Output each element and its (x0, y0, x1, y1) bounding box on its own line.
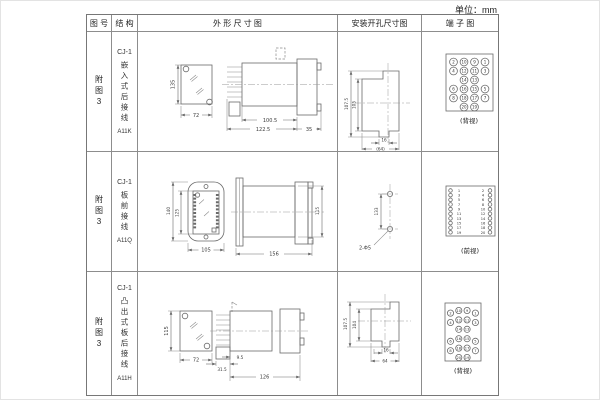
svg-text:5: 5 (457, 198, 459, 202)
svg-text:8: 8 (452, 95, 455, 100)
svg-text:4: 4 (481, 194, 484, 198)
structure-model: CJ-1 (117, 179, 132, 186)
header-mounting: 安装开孔尺寸图 (338, 15, 422, 32)
svg-text:18: 18 (480, 226, 485, 230)
structure-name: 嵌入式后接线 (119, 61, 130, 124)
outline-cell: 115 72 (138, 272, 338, 395)
svg-text:12: 12 (480, 212, 485, 216)
mounting-drawing-a11q: 133 2-Φ5 (338, 152, 421, 271)
terminal-circles: 2109141211314136161558181772019 (447, 307, 478, 360)
svg-text:6: 6 (481, 198, 484, 202)
side-dims: 31.5 9.5 126 (206, 353, 300, 381)
structure-cell: CJ-1 凸出式板后接线 A11H (112, 272, 138, 395)
svg-text:1: 1 (457, 189, 459, 193)
svg-text:4: 4 (452, 68, 455, 73)
center-lines (358, 294, 411, 353)
structure-cell: CJ-1 板前接线 A11Q (112, 152, 138, 272)
outline-drawing-a11h: 115 72 (138, 273, 337, 395)
structure-code: A11K (117, 129, 131, 135)
fig-no-text: 附图3 (94, 195, 105, 229)
structure-name: 板前接线 (119, 191, 130, 233)
structure-code: A11H (117, 376, 132, 382)
svg-text:13: 13 (464, 327, 469, 331)
terminal-cell: 2109141211314136161558181772019 (背视) (422, 272, 498, 395)
side-view (222, 48, 333, 116)
svg-text:16: 16 (383, 347, 389, 352)
outline-drawing-a11q: 140 125 105 (138, 152, 337, 271)
svg-text:11: 11 (456, 212, 461, 216)
svg-text:5: 5 (483, 86, 486, 91)
side-view (231, 178, 324, 246)
terminal-diagram-a11k: 2109141211314136161558181772019 (背视) (423, 32, 498, 151)
svg-text:107.5: 107.5 (344, 98, 349, 110)
svg-text:(64): (64) (376, 146, 385, 151)
dimension-table: 图 号 结 构 外 形 尺 寸 图 安装开孔尺寸图 端 子 图 附图3 CJ-1… (86, 14, 499, 396)
outline-cell: 140 125 105 (138, 152, 338, 272)
svg-text:15: 15 (471, 86, 477, 91)
svg-text:15: 15 (464, 337, 469, 341)
center-lines (382, 184, 398, 239)
view-label: (背视) (459, 116, 477, 125)
fig-no-cell: 附图3 (87, 272, 112, 395)
svg-text:12: 12 (456, 318, 461, 322)
outline-cell: 135 72 (138, 32, 338, 152)
terminal-cell: 1234567891011121314151617181920 (前视) (422, 152, 498, 272)
cutout-shape (362, 71, 399, 137)
svg-text:19: 19 (471, 104, 477, 109)
structure-name: 凸出式板后接线 (119, 297, 130, 371)
svg-text:3: 3 (474, 320, 476, 324)
svg-text:7: 7 (457, 203, 459, 207)
svg-text:20: 20 (480, 231, 485, 235)
svg-text:100.5: 100.5 (263, 118, 277, 124)
mounting-dims: 133 2-Φ5 (359, 194, 388, 252)
terminal-circles: 1234567891011121314151617181920 (448, 189, 491, 235)
side-view (210, 302, 310, 359)
terminal-diagram-a11q: 1234567891011121314151617181920 (前视) (423, 152, 498, 271)
svg-text:2: 2 (449, 311, 451, 315)
mounting-cell: 107.5 104 16 64 (338, 272, 422, 395)
svg-text:14: 14 (456, 327, 461, 331)
svg-text:1: 1 (474, 311, 476, 315)
header-fig-no: 图 号 (87, 15, 112, 32)
svg-text:8: 8 (481, 203, 484, 207)
svg-text:9.5: 9.5 (237, 355, 244, 360)
svg-text:17: 17 (456, 226, 461, 230)
outline-drawing-a11k: 135 72 (138, 32, 337, 151)
front-view (188, 182, 224, 241)
front-view (180, 311, 212, 351)
svg-text:126: 126 (260, 374, 270, 380)
svg-text:9: 9 (457, 208, 460, 212)
svg-text:8: 8 (449, 349, 452, 353)
svg-text:115: 115 (315, 207, 320, 215)
fig-no-text: 附图3 (94, 317, 105, 351)
svg-text:105: 105 (201, 248, 211, 254)
svg-text:4: 4 (449, 320, 452, 324)
svg-text:9: 9 (465, 308, 468, 312)
side-dims: 156 115 (236, 186, 324, 258)
front-dims: 135 72 (171, 65, 213, 119)
svg-text:11: 11 (464, 318, 469, 322)
svg-text:3: 3 (483, 68, 486, 73)
svg-text:16: 16 (480, 221, 485, 225)
svg-text:10: 10 (461, 59, 467, 64)
structure-model: CJ-1 (117, 285, 132, 292)
svg-text:7: 7 (474, 349, 476, 353)
mounting-cell: 107.5 105 16 (64) (338, 32, 422, 152)
front-view (181, 65, 212, 105)
svg-text:72: 72 (193, 113, 199, 119)
header-outline: 外 形 尺 寸 图 (138, 15, 338, 32)
svg-text:64: 64 (382, 358, 388, 363)
structure-cell: CJ-1 嵌入式后接线 A11K (112, 32, 138, 152)
svg-text:6: 6 (452, 86, 455, 91)
svg-text:135: 135 (171, 80, 177, 90)
svg-text:20: 20 (461, 104, 467, 109)
svg-text:1: 1 (483, 59, 486, 64)
fig-no-cell: 附图3 (87, 32, 112, 152)
terminal-circles: 2109141211314136161558181772019 (449, 58, 488, 111)
view-label: (背视) (453, 366, 471, 375)
svg-text:17: 17 (471, 95, 477, 100)
svg-text:35: 35 (306, 127, 312, 133)
svg-text:18: 18 (456, 346, 461, 350)
terminal-diagram-a11h: 2109141211314136161558181772019 (背视) (423, 273, 498, 395)
svg-text:156: 156 (269, 252, 279, 258)
svg-text:7: 7 (483, 95, 486, 100)
front-dims: 115 72 (164, 311, 212, 364)
svg-text:19: 19 (464, 355, 469, 359)
svg-text:72: 72 (193, 357, 199, 363)
svg-text:107.5: 107.5 (343, 317, 348, 329)
terminal-cell: 2109141211314136161558181772019 (背视) (422, 32, 498, 152)
terminal-block (446, 186, 495, 236)
svg-text:10: 10 (456, 308, 461, 312)
svg-text:16: 16 (461, 86, 467, 91)
mounting-dims: 107.5 105 16 (64) (344, 71, 399, 151)
svg-text:17: 17 (464, 346, 469, 350)
svg-text:31.5: 31.5 (217, 367, 227, 372)
mounting-cell: 133 2-Φ5 (338, 152, 422, 272)
svg-text:2-Φ5: 2-Φ5 (359, 246, 371, 252)
svg-text:14: 14 (461, 77, 467, 82)
svg-text:5: 5 (474, 339, 476, 343)
svg-text:105: 105 (352, 101, 357, 109)
svg-text:13: 13 (456, 217, 461, 221)
svg-text:115: 115 (164, 326, 170, 336)
svg-text:2: 2 (452, 59, 455, 64)
svg-text:16: 16 (456, 337, 461, 341)
svg-text:140: 140 (166, 207, 171, 215)
svg-text:104: 104 (352, 320, 357, 328)
header-terminal: 端 子 图 (422, 15, 498, 32)
svg-text:11: 11 (471, 68, 477, 73)
fig-no-text: 附图3 (94, 75, 105, 109)
svg-text:122.5: 122.5 (256, 127, 270, 133)
svg-text:15: 15 (456, 221, 461, 225)
side-dims: 100.5 122.5 35 (227, 99, 321, 133)
mounting-drawing-a11h: 107.5 104 16 64 (338, 273, 421, 395)
svg-text:16: 16 (381, 138, 387, 143)
svg-text:20: 20 (456, 355, 461, 359)
svg-text:2: 2 (481, 189, 483, 193)
svg-text:13: 13 (471, 77, 477, 82)
structure-model: CJ-1 (117, 49, 132, 56)
svg-text:9: 9 (473, 59, 476, 64)
mounting-drawing-a11k: 107.5 105 16 (64) (338, 32, 421, 151)
svg-text:19: 19 (456, 231, 461, 235)
header-structure: 结 构 (112, 15, 138, 32)
fig-no-cell: 附图3 (87, 152, 112, 272)
svg-text:10: 10 (480, 208, 485, 212)
structure-code: A11Q (117, 238, 132, 244)
svg-text:6: 6 (449, 339, 452, 343)
svg-text:12: 12 (461, 68, 467, 73)
svg-text:18: 18 (461, 95, 467, 100)
view-label: (前视) (460, 246, 478, 255)
datasheet-page: 单位：mm 图 号 结 构 外 形 尺 寸 图 安装开孔尺寸图 端 子 图 附图… (0, 0, 600, 400)
front-dims: 140 125 105 (166, 182, 224, 254)
svg-text:14: 14 (480, 217, 485, 221)
svg-text:3: 3 (457, 194, 459, 198)
svg-text:133: 133 (374, 207, 379, 215)
svg-text:125: 125 (175, 209, 180, 217)
